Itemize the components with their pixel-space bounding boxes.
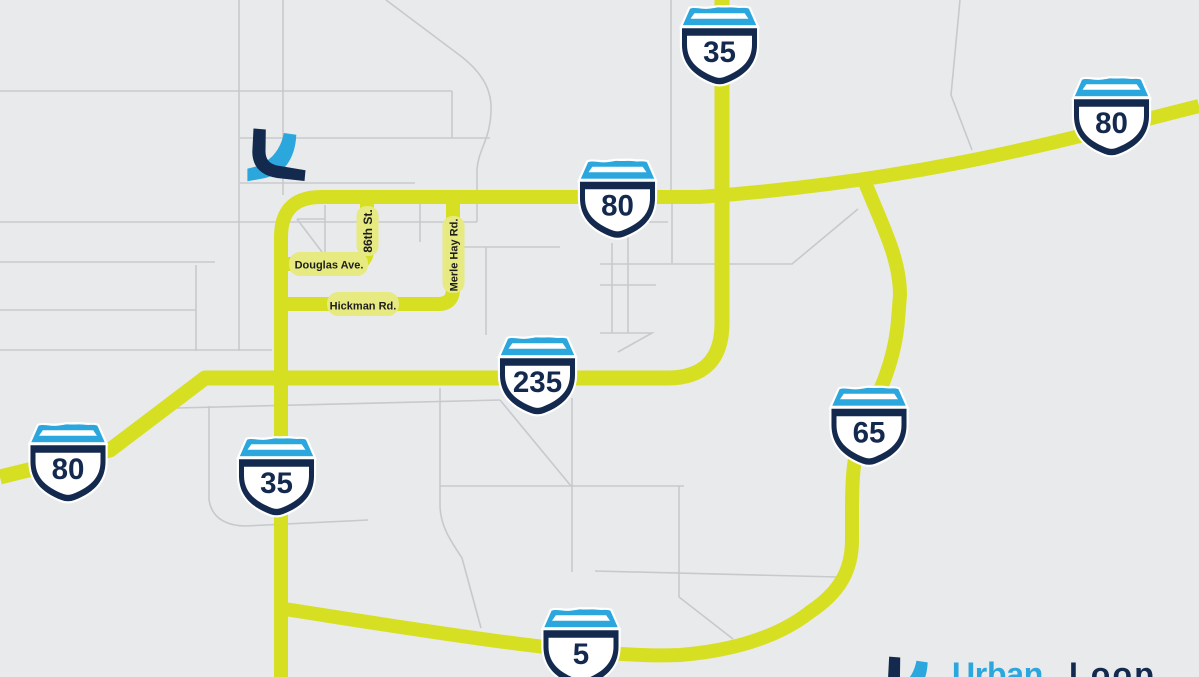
svg-text:5: 5 [573, 638, 589, 671]
svg-text:35: 35 [260, 467, 293, 500]
svg-text:86th St.: 86th St. [361, 209, 375, 252]
svg-text:Merle Hay Rd.: Merle Hay Rd. [449, 219, 461, 292]
svg-text:35: 35 [703, 36, 736, 69]
svg-text:Douglas Ave.: Douglas Ave. [295, 260, 364, 272]
svg-text:80: 80 [52, 453, 85, 486]
svg-text:235: 235 [513, 366, 562, 399]
svg-text:80: 80 [1095, 107, 1128, 140]
svg-text:65: 65 [853, 417, 886, 450]
svg-text:80: 80 [601, 190, 634, 223]
svg-text:Hickman Rd.: Hickman Rd. [330, 301, 397, 313]
